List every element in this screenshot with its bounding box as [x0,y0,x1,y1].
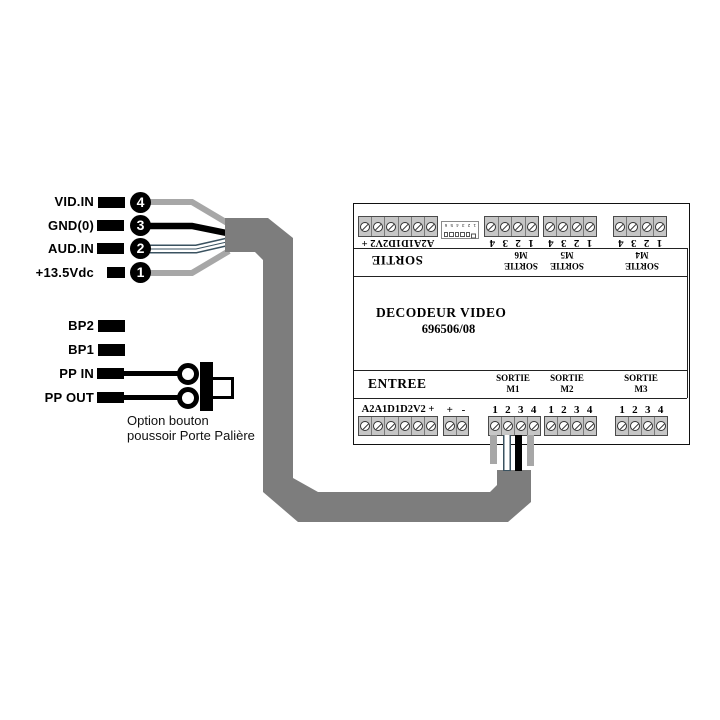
terminal-block-m3 [615,416,668,436]
screw-icon [503,421,513,431]
terminal-block-m1 [488,416,541,436]
vid-in-label: VID.IN [0,194,94,209]
terminal-cell [528,417,540,435]
screw-icon [628,222,638,232]
terminal-numbers-m1: 1 2 3 4 [488,404,541,416]
terminal-cell [502,417,515,435]
terminal-block-top-m4 [613,216,667,237]
terminal-block-top-m5 [543,216,597,237]
wire-aud-in-seam [150,242,229,250]
screw-icon [642,222,652,232]
screw-icon [529,421,539,431]
divider-line [354,370,687,371]
screw-icon [457,421,467,431]
screw-icon [445,421,455,431]
dip-switch-toggle [444,233,449,238]
terminal-numbers-top-m4: 1 2 3 4 [613,237,667,249]
dip-switch: 1 2 3 4 5 6 [441,221,479,239]
decoder-title: DECODEUR VIDEO [376,305,506,321]
terminal-cell [571,417,584,435]
pp-out-terminal-rect [97,392,124,403]
screw-icon [486,222,496,232]
output-label-line: M1 [488,384,538,395]
terminal-cell [359,417,372,435]
bp1-terminal-rect [98,344,125,356]
terminal-cell [544,217,557,236]
divider-line [354,276,687,277]
terminal-cell [515,417,528,435]
output-label-m3: SORTIE M3 [616,373,666,394]
terminal-cell [627,217,640,236]
screw-icon [559,421,569,431]
screw-icon [558,222,568,232]
screw-icon [630,421,640,431]
dip-switch-row [444,233,476,238]
screw-icon [585,222,595,232]
terminal-cell [654,217,666,236]
terminal-cell [425,417,437,435]
gnd-terminal-rect [97,220,124,231]
terminal-block-top-io [358,216,438,237]
terminal-cell [512,217,526,236]
dip-switch-toggle [472,234,477,239]
terminal-block-bottom-io [358,416,438,436]
output-label-line: M5 [542,250,592,261]
dip-switch-toggle [450,233,455,238]
output-label-line: SORTIE [616,373,666,384]
terminal-numbers-top-m6: 1 2 3 4 [484,237,539,249]
divider-line [354,398,687,399]
pp-in-wire [124,371,180,376]
terminal-cell [526,217,539,236]
output-label-line: SORTIE [617,261,667,272]
power-label: +13.5Vdc [0,265,94,280]
screw-icon [656,421,666,431]
pp-out-label: PP OUT [0,390,94,405]
screw-icon [373,421,383,431]
screw-icon [500,222,510,232]
output-label-line: SORTIE [488,373,538,384]
output-label-m6: SORTIE M6 [496,250,546,271]
terminal-label-top-io: A2A1D1D2V2 + [358,237,438,248]
aud-in-label: AUD.IN [0,241,94,256]
output-label-line: M4 [617,250,667,261]
screw-icon [643,421,653,431]
wire-number-badge-3: 3 [130,215,151,236]
screw-icon [413,421,423,431]
pp-in-terminal-rect [97,368,124,379]
terminal-numbers-m3: 1 2 3 4 [615,404,668,416]
screw-icon [545,222,555,232]
terminal-cell [614,217,627,236]
output-label-line: SORTIE [542,261,592,272]
output-label-line: M2 [542,384,592,395]
terminal-cell [558,417,571,435]
screw-icon [516,421,526,431]
pp-out-wire [124,395,180,400]
output-label-m1: SORTIE M1 [488,373,538,394]
terminal-cell [616,417,629,435]
terminal-numbers-top-m5: 1 2 3 4 [543,237,597,249]
terminal-label-plus-minus: + - [443,404,469,416]
screw-icon [360,421,370,431]
output-label-m5: SORTIE M5 [542,250,592,271]
terminal-block-power [443,416,469,436]
terminal-cell [444,417,457,435]
terminal-cell [642,417,655,435]
divider-line-right [687,248,688,398]
output-label-m4: SORTIE M4 [617,250,667,271]
gnd-label: GND(0) [0,218,94,233]
dip-switch-toggle [455,233,460,238]
dip-switch-toggle [461,233,466,238]
screw-icon [546,421,556,431]
terminal-cell [372,217,385,236]
output-label-m2: SORTIE M2 [542,373,592,394]
screw-icon [360,222,370,232]
screw-icon [413,222,423,232]
decoder-reference: 696506/08 [376,322,521,337]
pp-in-label: PP IN [0,366,94,381]
bp2-terminal-rect [98,320,125,332]
screw-icon [426,222,436,232]
screw-icon [615,222,625,232]
option-caption-line1: Option bouton [127,413,209,428]
terminal-cell [412,417,425,435]
terminal-numbers-m2: 1 2 3 4 [544,404,597,416]
screw-icon [617,421,627,431]
wire-gnd [150,226,229,234]
wire-number-badge-1: 1 [130,262,151,283]
aud-in-terminal-rect [97,243,124,254]
terminal-block-top-m6 [484,216,539,237]
terminal-cell [372,417,385,435]
terminal-cell [629,417,642,435]
terminal-cell [489,417,502,435]
bp2-label: BP2 [0,318,94,333]
terminal-cell [359,217,372,236]
screw-icon [572,421,582,431]
terminal-cell [571,217,584,236]
screw-icon [426,421,436,431]
pp-out-contact-icon [177,387,199,409]
dip-switch-numbers: 1 2 3 4 5 6 [444,223,476,228]
option-caption-line2: poussoir Porte Palière [127,428,255,443]
output-label-line: M3 [616,384,666,395]
output-label-line: M6 [496,250,546,261]
terminal-cell [399,217,412,236]
terminal-cell [545,417,558,435]
screw-icon [585,421,595,431]
terminal-label-bottom-io: A2A1D1D2V2 + [358,404,438,415]
screw-icon [527,222,537,232]
entree-label: ENTREE [368,376,427,392]
wire-number-badge-2: 2 [130,238,151,259]
screw-icon [400,421,410,431]
screw-icon [386,421,396,431]
sortie-row-label: SORTIE [368,252,426,268]
terminal-cell [584,217,596,236]
screw-icon [400,222,410,232]
terminal-cell [641,217,654,236]
terminal-cell [499,217,513,236]
pp-in-contact-icon [177,363,199,385]
wire-aud-in [150,242,229,250]
bp1-label: BP1 [0,342,94,357]
terminal-cell [557,217,570,236]
terminal-cell [584,417,596,435]
terminal-cell [425,217,437,236]
terminal-cell [655,417,667,435]
screw-icon [655,222,665,232]
screw-icon [490,421,500,431]
output-label-line: SORTIE [496,261,546,272]
screw-icon [386,222,396,232]
wire-vid-in [150,202,229,224]
terminal-cell [399,417,412,435]
wire-aud-in-outline [150,242,229,250]
wire-power [150,251,229,273]
terminal-cell [485,217,499,236]
terminal-cell [385,217,398,236]
vid-in-terminal-rect [98,197,125,208]
terminal-cell [412,217,425,236]
screw-icon [373,222,383,232]
power-terminal-rect [107,267,125,278]
terminal-cell [457,417,469,435]
screw-icon [572,222,582,232]
dip-switch-toggle [466,233,471,238]
push-button-bar [200,362,213,411]
decoder-box: A2A1D1D2V2 + 1 2 3 4 5 6 1 2 3 4 [353,203,690,445]
terminal-block-m2 [544,416,597,436]
wire-number-badge-4: 4 [130,192,151,213]
output-label-line: SORTIE [542,373,592,384]
screw-icon [513,222,523,232]
wiring-diagram: A2A1D1D2V2 + 1 2 3 4 5 6 1 2 3 4 [0,0,720,720]
terminal-cell [385,417,398,435]
